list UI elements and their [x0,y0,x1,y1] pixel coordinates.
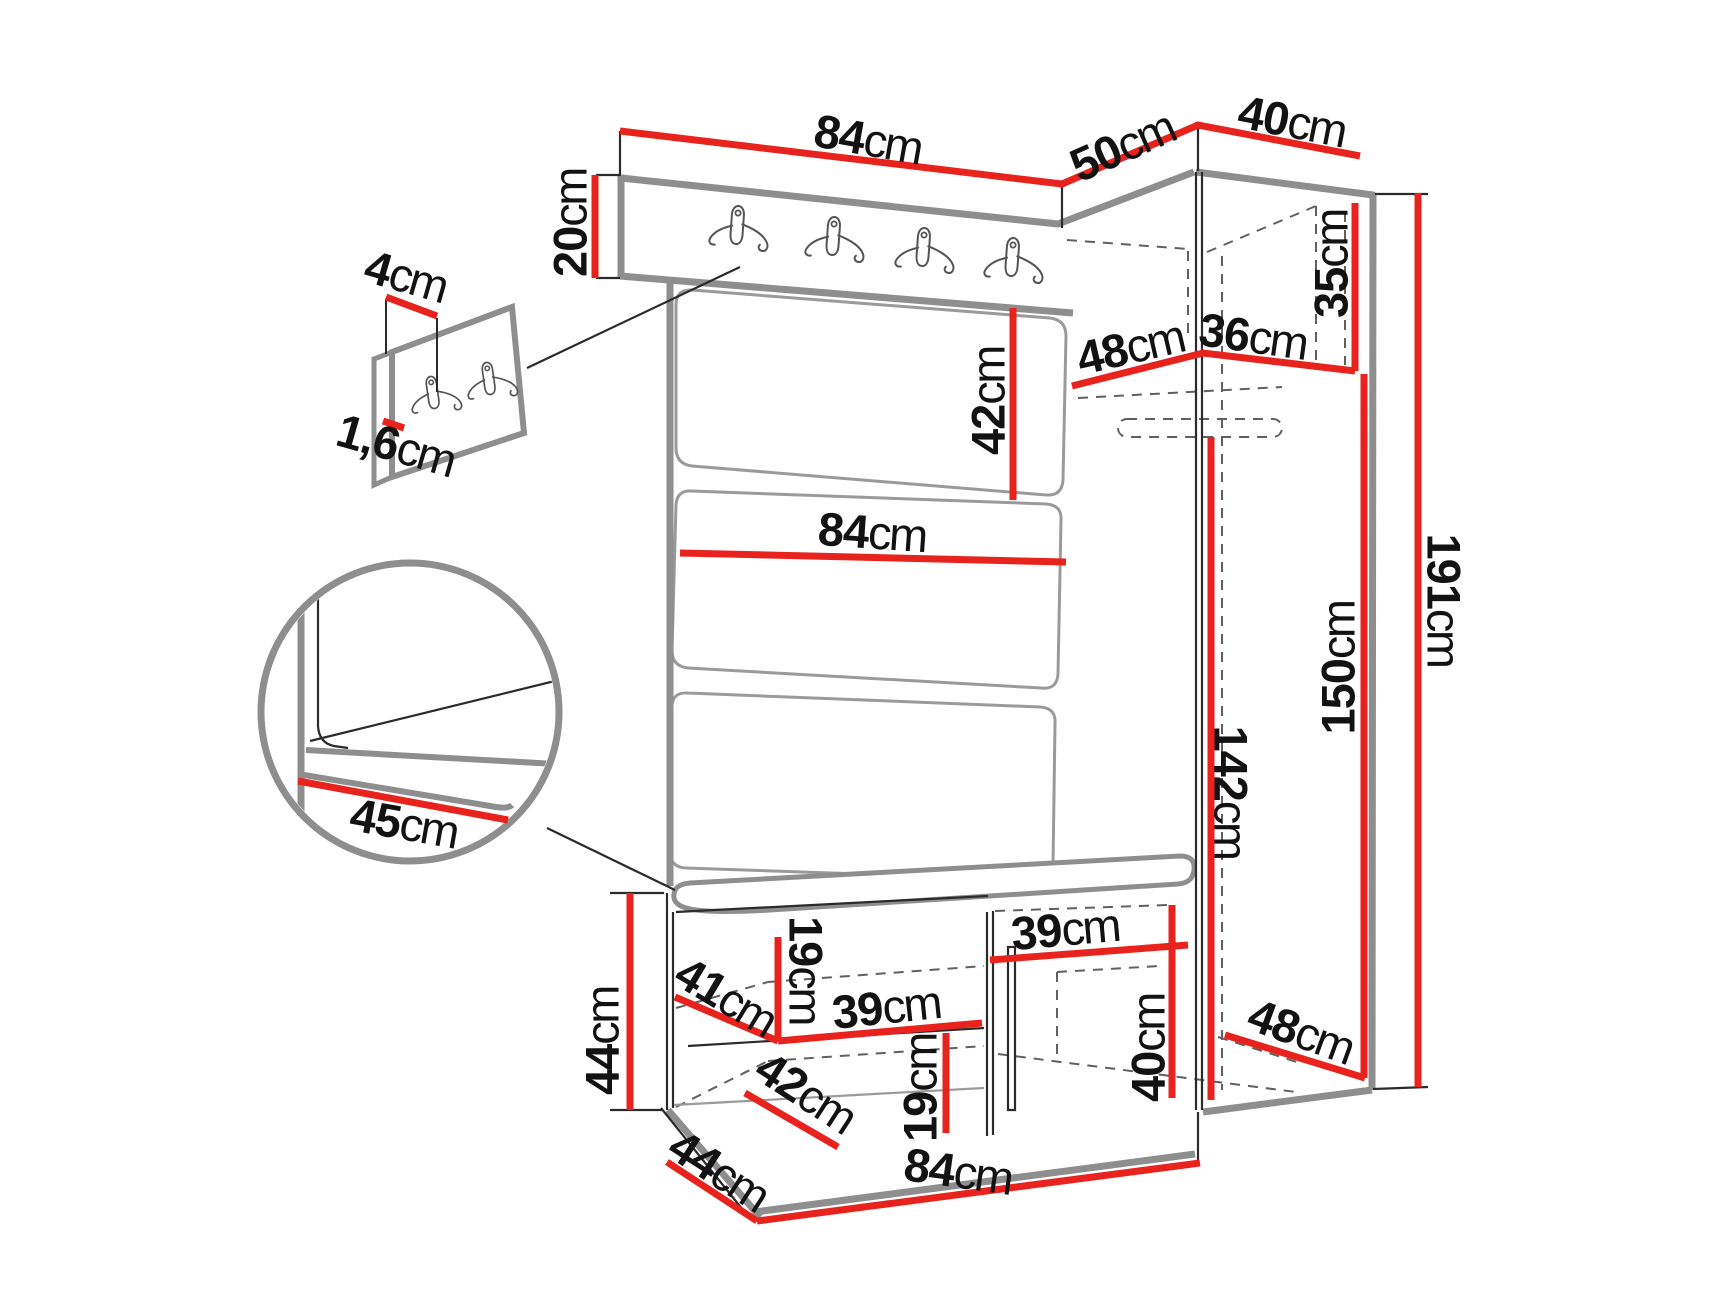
dim-cubby-top-19: 19cm [783,916,830,1024]
dim-mid-width-84: 84cm [817,505,928,559]
dim-box-height-40: 40cm [1125,994,1172,1102]
dim-door-width-39: 39cm [1009,901,1121,957]
dim-board-height-20: 20cm [547,169,594,277]
dim-back-panel-42: 42cm [965,347,1012,455]
dim-shelf-height-35: 35cm [1308,210,1355,318]
hallway-furniture-dimension-diagram: 84cm 50cm 40cm 20cm 4cm 1,6cm 42cm 84cm … [0,0,1726,1294]
dim-rod-height-142: 142cm [1208,725,1255,858]
dim-cubby-bottom-19: 19cm [897,1034,944,1142]
dim-bench-height-44: 44cm [579,987,626,1095]
dim-cubby-width-39: 39cm [830,978,942,1036]
dim-total-height-191: 191cm [1421,533,1468,666]
dim-inner-height-150: 150cm [1315,601,1362,734]
